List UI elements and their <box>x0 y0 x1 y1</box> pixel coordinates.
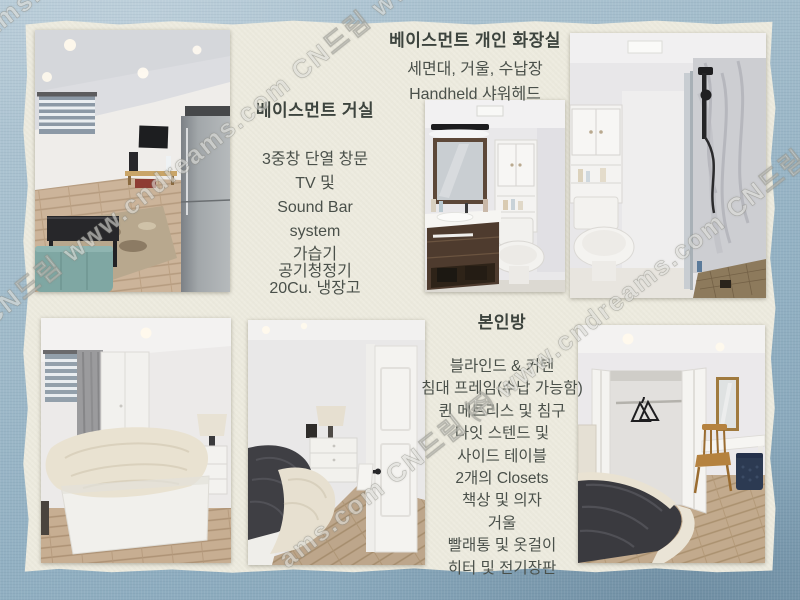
ceiling <box>578 325 765 353</box>
camera-item <box>306 424 317 438</box>
teal-ottoman <box>35 246 113 292</box>
bathroom-items: 세면대, 거울, 수납장 Handheld 샤워헤드 <box>355 57 595 107</box>
pot-light <box>193 46 202 55</box>
vanity-light-bar <box>429 124 489 139</box>
feature-item: 블라인드 & 커텐 <box>418 356 586 378</box>
bathroom-vanity-scene <box>425 100 565 292</box>
feature-item: 빨래통 및 옷걸이 <box>418 535 586 557</box>
main-bedroom-section: 본인방 블라인드 & 커텐 침대 프레임(수납 가능함) 퀸 메트리스 및 침구… <box>418 308 586 580</box>
feature-item: Handheld 샤워헤드 <box>355 82 595 107</box>
feature-item: Sound Bar <box>222 198 408 217</box>
bathroom-section: 베이스먼트 개인 화장실 세면대, 거울, 수납장 Handheld 샤워헤드 <box>355 26 595 107</box>
bedroom-closet-photo <box>578 325 765 563</box>
feature-item: system <box>222 222 408 241</box>
bottle <box>697 261 702 272</box>
feature-item: 침대 프레임(수납 가능함) <box>418 378 586 400</box>
zebra-blind-window <box>43 350 81 402</box>
wall-mirror <box>716 377 739 431</box>
over-toilet-cabinet <box>570 105 622 203</box>
pot-light <box>716 343 725 352</box>
red-box <box>135 179 156 188</box>
bathroom-shower-scene <box>570 33 766 298</box>
feature-item: 사이드 테이블 <box>418 446 586 468</box>
feature-item: 퀸 메트리스 및 침구 <box>418 401 586 423</box>
bedroom-door-scene <box>248 320 425 565</box>
drain <box>720 280 731 288</box>
feature-item: 20Cu. 냉장고 <box>222 280 408 297</box>
bedroom-bed-photo <box>41 318 231 563</box>
living-room-scene <box>35 30 230 292</box>
pot-light <box>141 328 152 339</box>
pot-light <box>262 326 270 334</box>
feature-item: 3중창 단열 창문 <box>222 150 408 169</box>
feature-item: 가습기 <box>222 246 408 263</box>
feature-item: 나잇 스텐드 및 <box>418 423 586 445</box>
feature-item: 2개의 Closets <box>418 468 586 490</box>
ceiling-vent <box>477 106 503 116</box>
bathroom-shower-photo <box>570 33 766 298</box>
shower-enclosure <box>684 58 766 298</box>
laundry-basket <box>736 453 763 490</box>
main-bedroom-items: 블라인드 & 커텐 침대 프레임(수납 가능함) 퀸 메트리스 및 침구 나잇 … <box>418 356 586 580</box>
pot-light <box>64 39 76 51</box>
white-door <box>366 344 417 552</box>
tv <box>139 126 169 149</box>
bed <box>46 427 209 554</box>
pot-light <box>42 72 52 82</box>
mirror <box>433 138 487 204</box>
bathroom-floor <box>570 268 693 298</box>
feature-item: 책상 및 의자 <box>418 490 586 512</box>
main-bedroom-title: 본인방 <box>418 308 586 333</box>
pot-light <box>623 334 634 345</box>
living-room-section: 베이스먼트 거실 3중창 단열 창문 TV 및 Sound Bar system… <box>222 96 408 297</box>
ceiling-vent <box>628 41 662 53</box>
door-edge <box>41 501 49 535</box>
ceiling <box>248 320 425 340</box>
pot-light <box>138 68 149 79</box>
feature-item: 히터 및 전기장판 <box>418 558 586 580</box>
trash-bin <box>357 464 373 490</box>
feature-item: 세면대, 거울, 수납장 <box>355 57 595 82</box>
bathroom-title: 베이스먼트 개인 화장실 <box>355 26 595 51</box>
bedroom-closet-scene <box>578 325 765 563</box>
bedroom-bed-scene <box>41 318 231 563</box>
feature-item: TV 및 <box>222 174 408 193</box>
zebra-blind-window <box>37 92 97 134</box>
bedroom-door-photo <box>248 320 425 565</box>
feature-item: 공기청정기 <box>222 263 408 280</box>
feature-item: 거울 <box>418 513 586 535</box>
speaker <box>129 152 138 171</box>
glass-frame <box>684 73 690 289</box>
pot-light <box>301 323 307 329</box>
bathroom-vanity-photo <box>425 100 565 292</box>
living-room-photo <box>35 30 230 292</box>
living-room-items: 3중창 단열 창문 TV 및 Sound Bar system 가습기 공기청정… <box>222 150 408 297</box>
